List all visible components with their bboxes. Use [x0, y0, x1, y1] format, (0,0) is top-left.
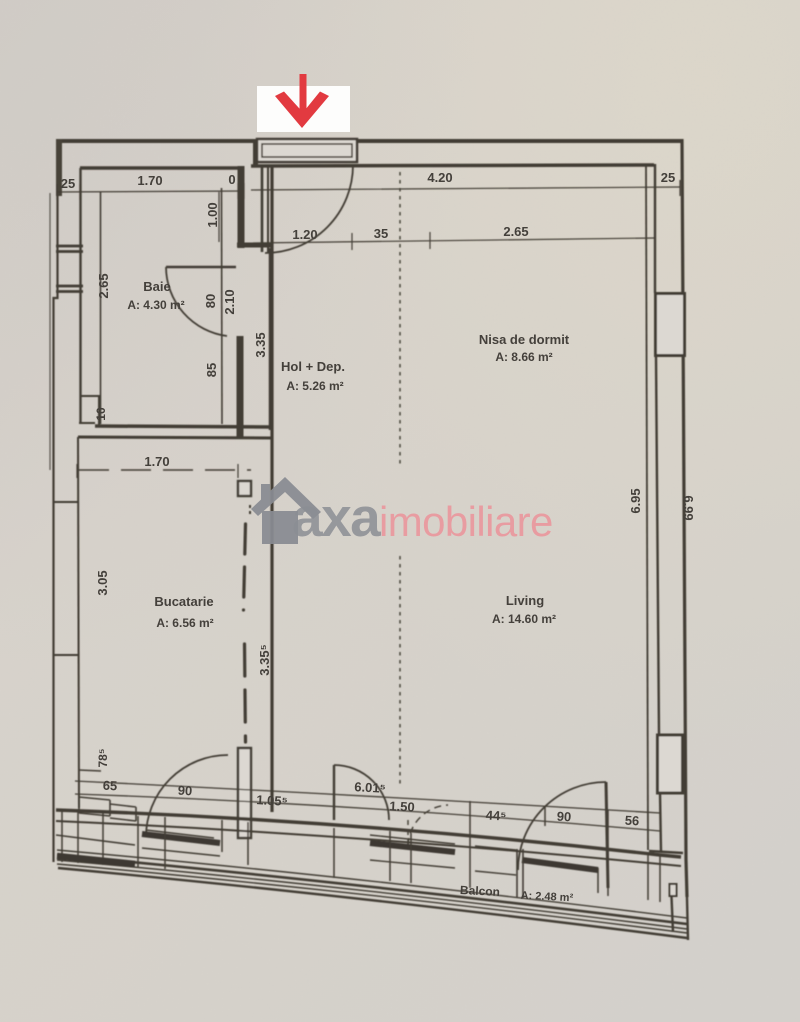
- svg-text:90: 90: [177, 783, 192, 799]
- svg-text:3.35: 3.35: [253, 332, 268, 357]
- svg-text:A: 6.56 m²: A: 6.56 m²: [156, 616, 213, 630]
- svg-text:56: 56: [624, 813, 639, 829]
- svg-text:10: 10: [94, 407, 108, 421]
- svg-text:Living: Living: [506, 593, 544, 608]
- svg-text:Hol + Dep.: Hol + Dep.: [281, 359, 345, 374]
- svg-text:0: 0: [228, 172, 235, 187]
- svg-text:1.20: 1.20: [292, 227, 317, 242]
- svg-text:1.05⁵: 1.05⁵: [256, 792, 288, 809]
- svg-text:90: 90: [556, 809, 571, 825]
- svg-text:80: 80: [203, 294, 218, 308]
- svg-text:1.00: 1.00: [205, 202, 220, 227]
- svg-text:3.35⁵: 3.35⁵: [257, 644, 272, 675]
- svg-text:imobiliare: imobiliare: [379, 498, 553, 545]
- svg-text:4.20: 4.20: [427, 170, 452, 185]
- svg-text:A: 14.60 m²: A: 14.60 m²: [492, 612, 556, 626]
- svg-text:A: 5.26 m²: A: 5.26 m²: [286, 379, 343, 393]
- svg-text:85: 85: [204, 363, 219, 377]
- svg-text:78⁵: 78⁵: [96, 749, 110, 768]
- svg-text:1.70: 1.70: [144, 454, 169, 469]
- svg-text:2.65: 2.65: [503, 224, 528, 239]
- svg-text:2.65: 2.65: [96, 273, 111, 298]
- svg-text:6.95: 6.95: [628, 488, 643, 513]
- svg-text:A: 4.30 m²: A: 4.30 m²: [127, 298, 184, 312]
- svg-text:65: 65: [102, 778, 117, 794]
- svg-text:2.10: 2.10: [222, 289, 237, 314]
- svg-text:6.01⁵: 6.01⁵: [354, 779, 386, 796]
- svg-text:44⁵: 44⁵: [485, 807, 506, 823]
- svg-text:Nisa de dormit: Nisa de dormit: [479, 332, 570, 347]
- svg-text:6.99: 6.99: [681, 495, 696, 520]
- svg-text:1.50: 1.50: [389, 798, 415, 814]
- svg-text:Bucatarie: Bucatarie: [154, 594, 213, 609]
- svg-text:3.05: 3.05: [95, 570, 110, 595]
- svg-text:Baie: Baie: [143, 279, 170, 294]
- svg-text:axa: axa: [292, 486, 381, 548]
- svg-text:Balcon: Balcon: [460, 883, 501, 899]
- svg-text:25: 25: [61, 176, 75, 191]
- svg-text:35: 35: [374, 226, 388, 241]
- svg-text:A: 8.66 m²: A: 8.66 m²: [495, 350, 552, 364]
- svg-text:1.70: 1.70: [137, 173, 162, 188]
- svg-text:25: 25: [661, 170, 675, 185]
